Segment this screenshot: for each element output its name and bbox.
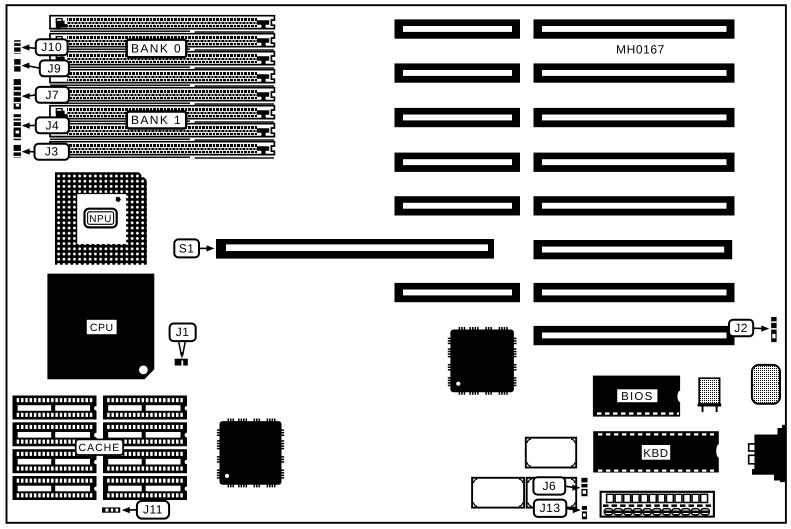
svg-text:BANK 1: BANK 1 [131,113,182,127]
svg-text:CACHE: CACHE [79,442,121,454]
svg-text:J2: J2 [734,321,748,335]
svg-text:J13: J13 [540,501,561,515]
svg-text:J11: J11 [143,503,163,517]
svg-text:CPU: CPU [90,322,114,334]
svg-text:NPU: NPU [89,214,112,225]
svg-text:J9: J9 [48,61,62,75]
svg-text:J3: J3 [45,145,59,159]
svg-text:BANK 0: BANK 0 [131,41,182,55]
svg-text:J4: J4 [46,118,60,132]
svg-text:BIOS: BIOS [621,391,653,403]
svg-text:S1: S1 [179,241,195,255]
svg-text:J10: J10 [41,40,62,54]
svg-text:MH0167: MH0167 [616,43,665,57]
svg-text:J7: J7 [46,88,60,102]
svg-text:J1: J1 [176,325,190,339]
svg-text:J6: J6 [542,479,556,493]
svg-text:KBD: KBD [643,448,668,460]
